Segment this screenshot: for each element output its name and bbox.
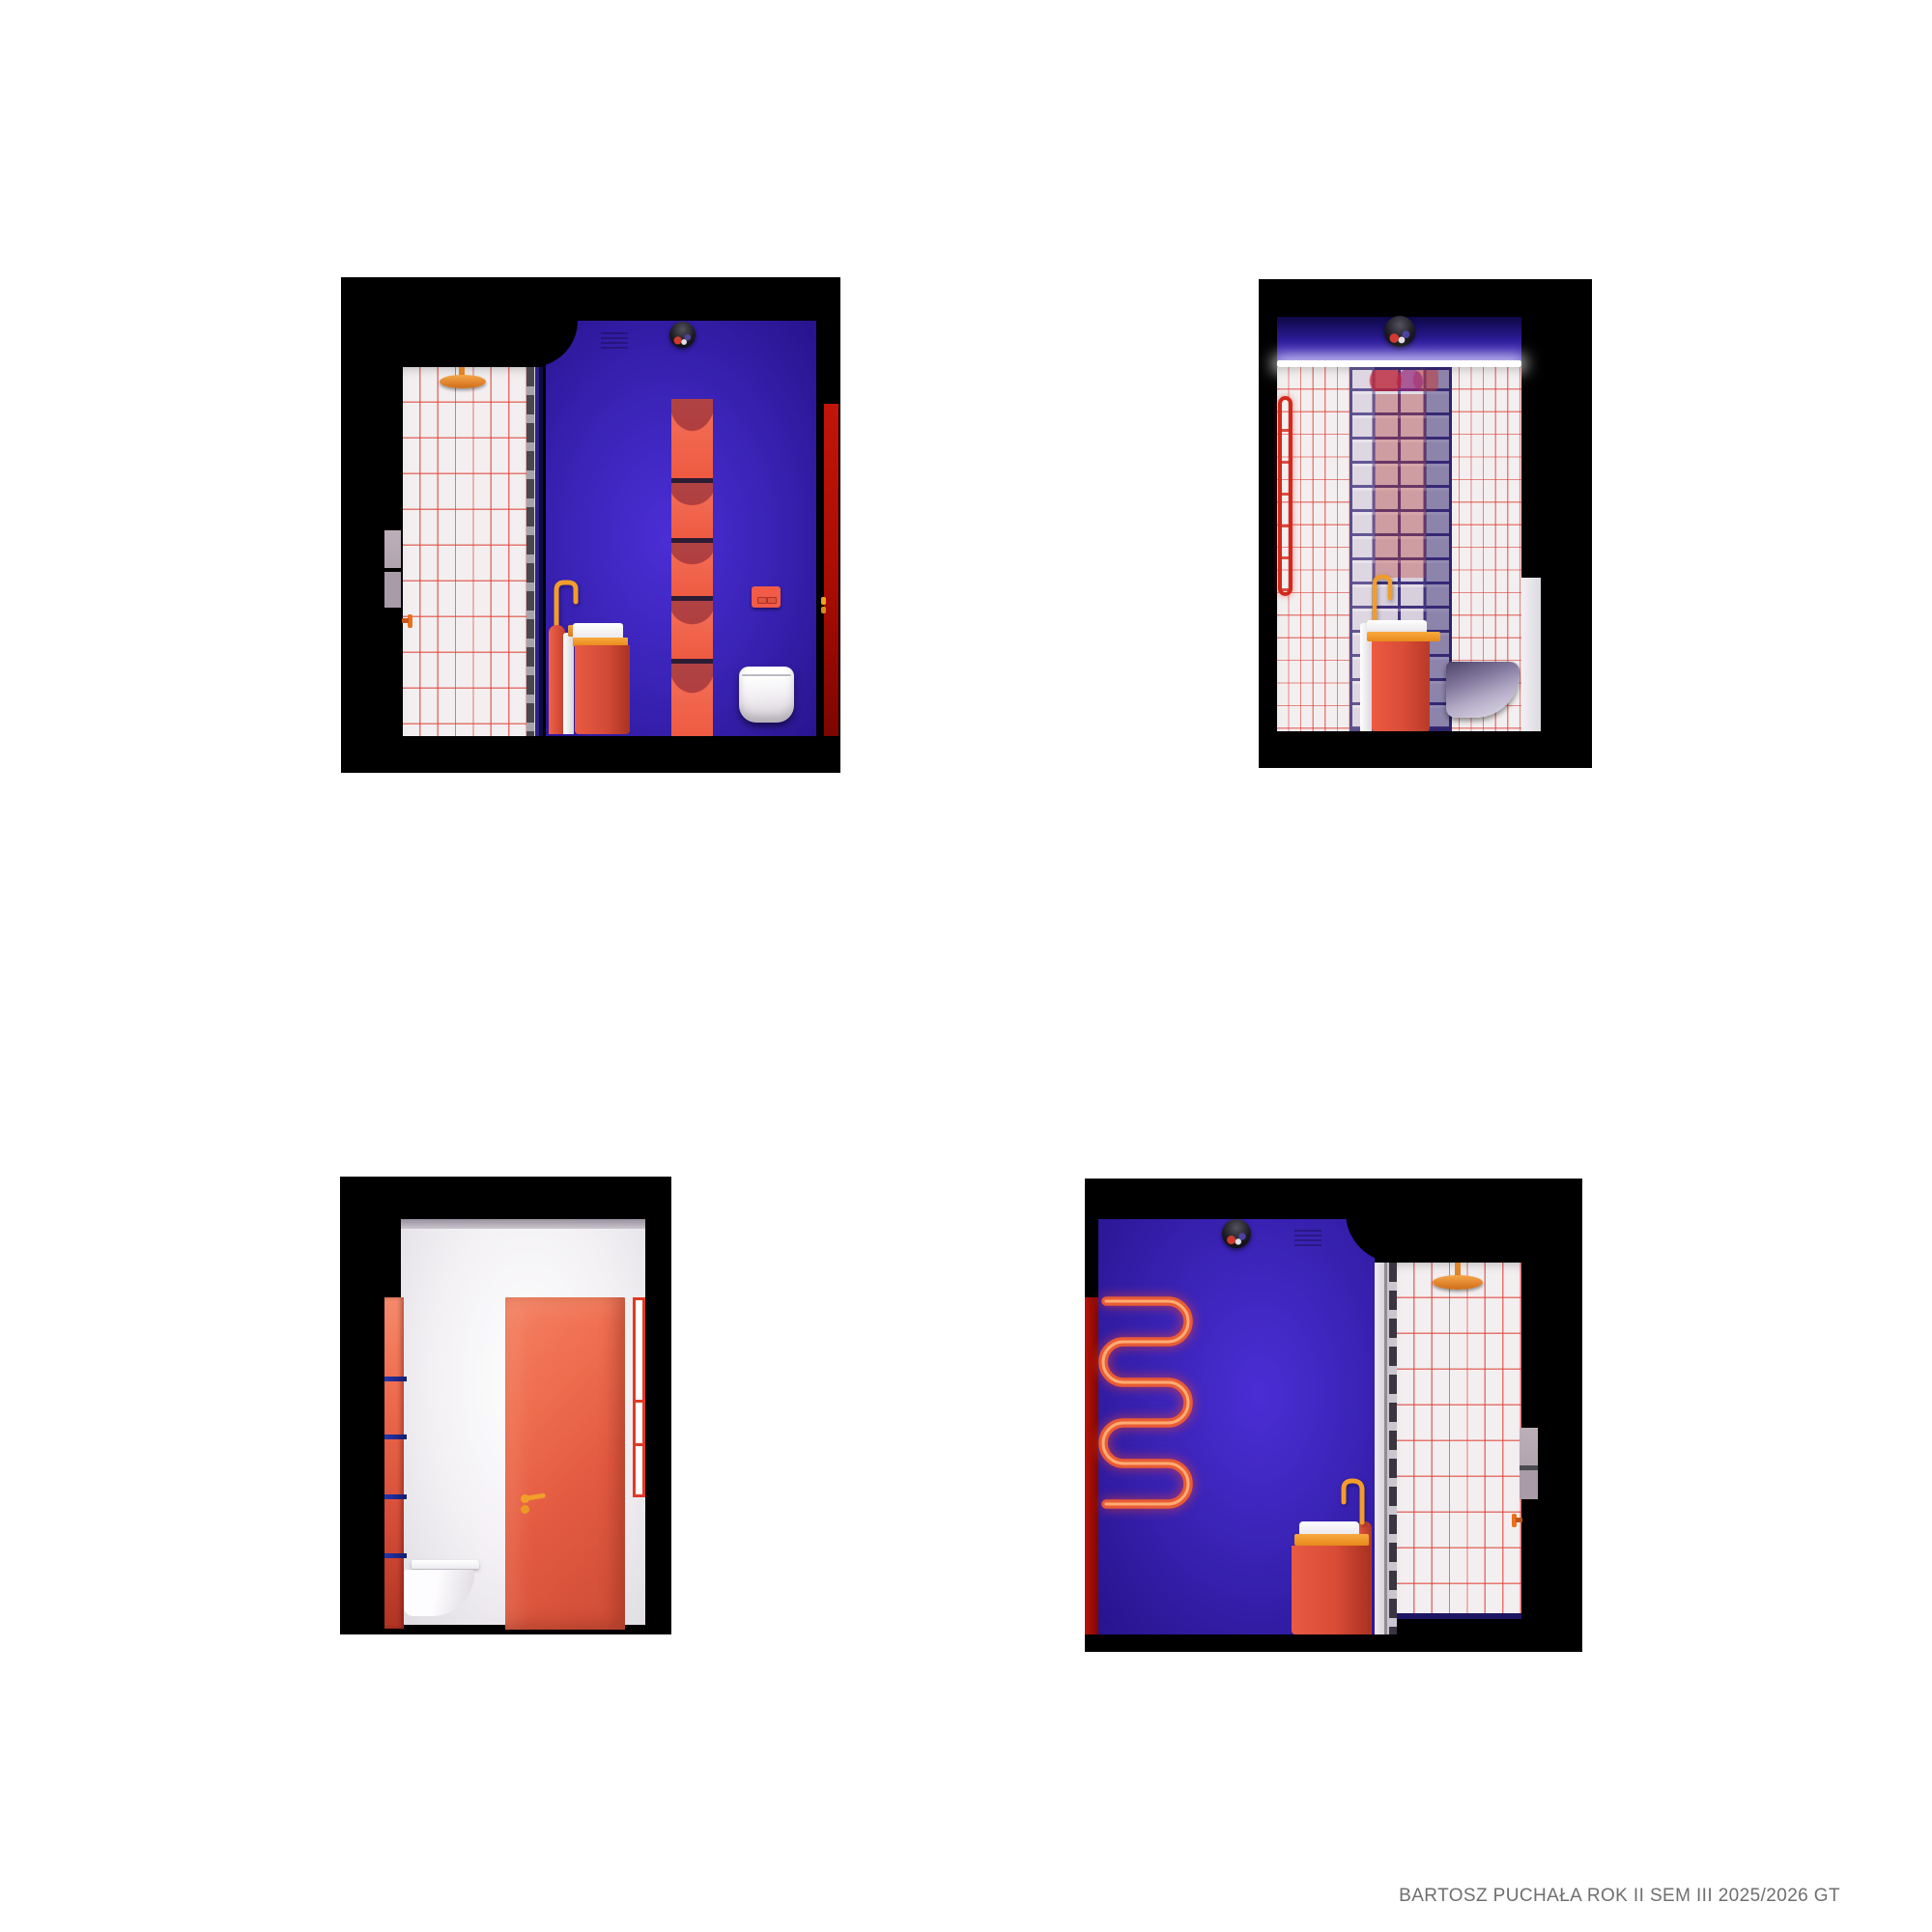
red-door-edge — [824, 404, 838, 736]
wall-switch-panel — [384, 572, 401, 608]
toilet-lid — [412, 1560, 479, 1569]
open-shelf-column-side — [384, 1297, 404, 1629]
wall-hung-toilet — [739, 667, 794, 723]
glass-tint-red — [1375, 394, 1426, 578]
door-handle-edge — [821, 607, 826, 613]
tile-skirting — [1397, 1613, 1521, 1619]
door-handle-rose — [521, 1494, 529, 1503]
elevation-panel-top-left — [341, 277, 840, 773]
glass-partition — [1384, 1263, 1397, 1634]
ceiling-vent — [601, 332, 628, 352]
led-cove-light — [1277, 360, 1521, 367]
wall-return-edge — [1375, 1263, 1384, 1634]
wall-switch-panel — [384, 530, 401, 568]
basin-counter — [1294, 1534, 1369, 1546]
elevation-panel-top-right — [1259, 279, 1592, 768]
gooseneck-faucet — [1367, 573, 1396, 627]
wall-switch-panel — [1520, 1428, 1538, 1465]
shelf-board — [384, 1553, 407, 1558]
valve-handle — [1516, 1518, 1522, 1522]
door-keyhole — [521, 1505, 529, 1514]
niche-cell — [671, 543, 713, 596]
mirror-ball-pendant-light — [1222, 1219, 1251, 1248]
flush-button — [757, 597, 767, 604]
wall-hung-toilet-side — [404, 1560, 479, 1618]
mirror-ball-pendant-light — [1384, 316, 1415, 347]
basin-counter — [1367, 632, 1440, 641]
flush-plate — [752, 586, 781, 608]
shelf-board — [384, 1494, 407, 1499]
gooseneck-faucet — [544, 579, 587, 629]
white-column — [563, 633, 574, 734]
partition-clips — [526, 367, 534, 736]
water-valve — [1510, 1514, 1522, 1528]
niche-cell — [671, 664, 713, 736]
serpentine-towel-radiator — [1094, 1287, 1210, 1519]
ceiling-soffit — [341, 277, 578, 367]
entrance-door — [505, 1297, 625, 1630]
glass-flower-motif — [1363, 370, 1438, 391]
shelf-side-board — [636, 1400, 642, 1403]
shelf-side-board — [636, 1443, 642, 1446]
shelf-board — [384, 1377, 407, 1381]
shelf-board — [384, 1435, 407, 1439]
recessed-shelf-column — [671, 399, 713, 736]
tiled-shower-wall — [403, 367, 526, 736]
elevation-panel-bottom-right — [1085, 1179, 1582, 1652]
basin-cabinet — [575, 645, 630, 734]
niche-cell — [671, 601, 713, 659]
ceiling-shadow-band — [401, 1219, 645, 1229]
mirror-ball-pendant-light — [669, 322, 696, 348]
door-opening — [1521, 578, 1541, 731]
glass-partition — [526, 367, 543, 736]
door-handle-edge — [821, 597, 826, 605]
niche-cell — [671, 483, 713, 538]
toilet-seat-line — [742, 674, 791, 676]
rain-shower-head — [1433, 1275, 1483, 1290]
valve-handle — [402, 618, 409, 623]
toilet-bowl — [404, 1570, 474, 1616]
basin-cabinet — [1372, 641, 1430, 731]
flush-button — [767, 597, 777, 604]
shower-arm — [1455, 1263, 1461, 1276]
tiled-shower-wall — [1397, 1263, 1521, 1613]
partition-clips — [1389, 1263, 1397, 1634]
towel-radiator-side — [1278, 396, 1293, 596]
niche-cell — [671, 399, 713, 478]
water-valve — [402, 614, 414, 629]
rain-shower-head — [440, 375, 486, 388]
gooseneck-faucet — [1334, 1476, 1373, 1524]
basin-cabinet — [1292, 1546, 1371, 1634]
author-caption: BARTOSZ PUCHAŁA ROK II SEM III 2025/2026… — [1399, 1886, 1840, 1907]
ceiling-soffit — [1346, 1179, 1582, 1263]
elevation-panel-bottom-left — [340, 1177, 671, 1634]
shelf-side-panel — [633, 1297, 645, 1497]
wall-switch-panel — [1520, 1470, 1538, 1499]
ceiling-vent — [1294, 1230, 1321, 1246]
